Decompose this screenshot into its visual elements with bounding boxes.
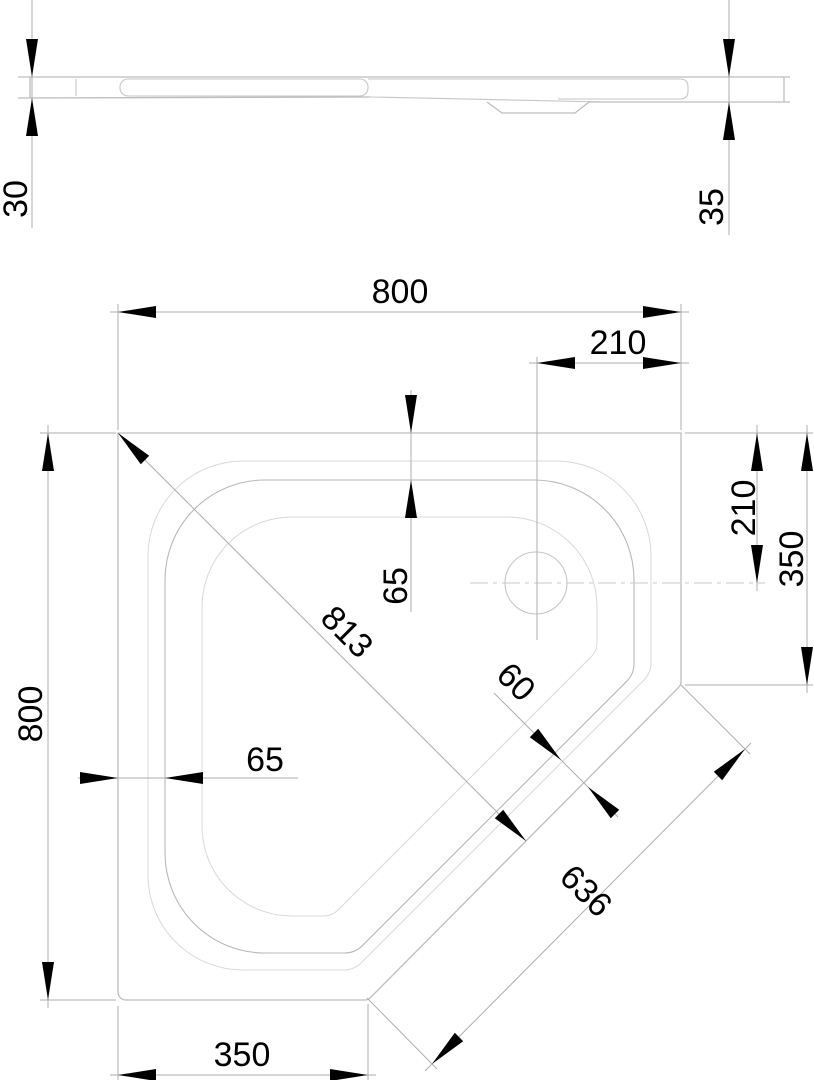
- arrowhead-down-icon: [801, 647, 813, 685]
- side-view: 30 35: [0, 0, 790, 235]
- arrowhead-left-icon: [118, 1069, 156, 1080]
- arrowhead-up-icon: [405, 480, 417, 518]
- arrowhead-up-icon: [801, 433, 813, 471]
- dim-rim-width-left: 65: [78, 741, 298, 784]
- arrowhead-down-icon: [42, 962, 54, 1000]
- dim-label-thickness-left: 30: [0, 180, 35, 218]
- plan-view: [118, 357, 765, 1000]
- dim-label-diagonal-length: 813: [313, 599, 380, 666]
- arrowhead-down-icon: [751, 545, 763, 583]
- arrowhead-right-icon: [330, 1069, 368, 1080]
- arrowhead-left-icon: [165, 772, 203, 784]
- dim-label-diagonal-rim-width: 60: [489, 655, 543, 709]
- dim-label-rim-width-left: 65: [246, 741, 284, 779]
- dim-right-edge-length: 350: [685, 425, 813, 693]
- arrowhead-upright-icon: [714, 749, 745, 780]
- arrowhead-downright-icon: [495, 810, 526, 841]
- arrowhead-right-icon: [643, 306, 681, 318]
- dim-thickness-left: 30: [0, 0, 38, 228]
- dim-label-overall-height: 800: [12, 686, 50, 743]
- side-bottom-edge-left: [18, 97, 370, 98]
- extension-line: [367, 998, 437, 1069]
- technical-drawing-shower-tray: 30 35 800: [0, 0, 814, 1080]
- arrowhead-downright-icon: [530, 729, 561, 760]
- dim-rim-width-top: 65: [377, 390, 417, 612]
- arrowhead-down-icon: [26, 39, 38, 77]
- dim-drain-from-right: 210: [529, 324, 689, 369]
- dim-overall-height: 800: [12, 425, 116, 1008]
- arrowhead-left-icon: [118, 306, 156, 318]
- side-rim-recess-right: [368, 79, 688, 99]
- dim-label-cut-edge-length: 636: [552, 858, 619, 925]
- dim-cut-edge-length: 636: [367, 685, 751, 1071]
- extension-line: [681, 685, 750, 754]
- dim-label-rim-width-top: 65: [377, 567, 415, 605]
- dim-label-overall-width: 800: [372, 273, 429, 311]
- arrowhead-right-icon: [643, 357, 681, 369]
- dim-label-right-edge-length: 350: [773, 531, 811, 588]
- dim-label-bottom-edge-length: 350: [214, 1036, 271, 1074]
- arrowhead-down-icon: [405, 395, 417, 433]
- dim-label-drain-from-top: 210: [725, 480, 763, 537]
- arrowhead-up-icon: [26, 98, 38, 136]
- arrowhead-up-icon: [723, 102, 735, 140]
- arrowhead-down-icon: [723, 39, 735, 77]
- dim-label-drain-from-right: 210: [590, 324, 647, 362]
- side-rim-recess-left: [120, 79, 368, 96]
- dim-thickness-right: 35: [693, 0, 735, 235]
- dim-diagonal-rim-width: 60: [489, 655, 619, 818]
- dim-bottom-edge-length: 350: [110, 1004, 376, 1080]
- dim-label-thickness-right: 35: [693, 188, 731, 226]
- arrowhead-right-icon: [80, 772, 118, 784]
- arrowhead-upleft-icon: [588, 787, 619, 818]
- side-drain-sump: [487, 102, 589, 113]
- arrowhead-left-icon: [537, 357, 575, 369]
- arrowhead-up-icon: [42, 433, 54, 471]
- arrowhead-up-icon: [751, 433, 763, 471]
- arrowhead-downleft-icon: [432, 1033, 463, 1064]
- arrowhead-upleft-icon: [118, 433, 149, 464]
